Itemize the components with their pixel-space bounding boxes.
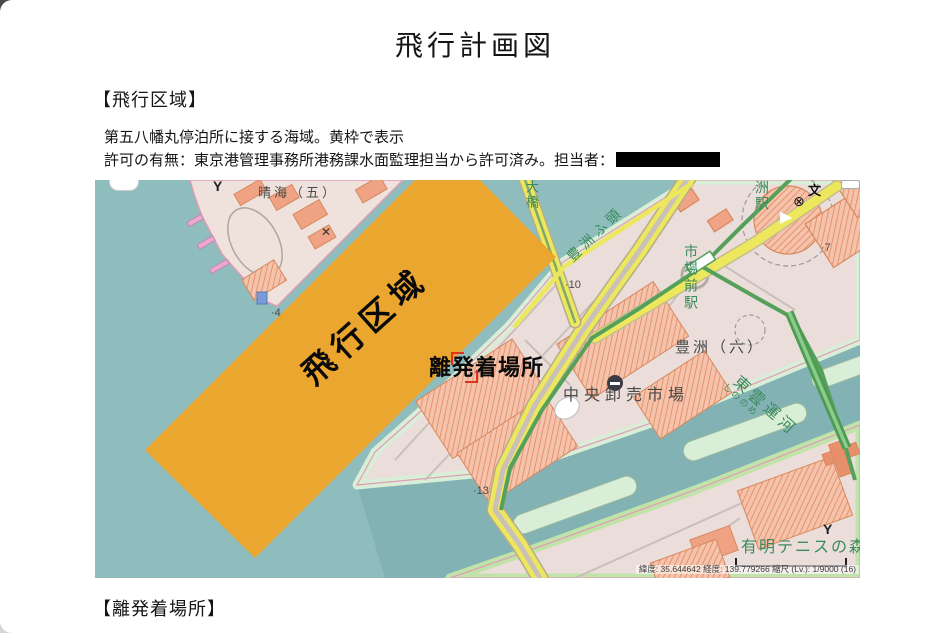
label-harumi-ohashi: 大橋: [525, 180, 538, 210]
label-ariake-tennis: 有明テニスの森: [741, 540, 860, 556]
school-symbol-icon: 文: [808, 184, 821, 197]
landing-site-overlay-text: 離発着場所: [429, 357, 544, 379]
document-page: 飛行計画図 【飛行区域】 第五八幡丸停泊所に接する海域。黄枠で表示 許可の有無：…: [0, 0, 950, 633]
body-text-area-description: 第五八幡丸停泊所に接する海域。黄枠で表示: [104, 126, 404, 147]
port-symbol-icon: Y: [213, 180, 222, 193]
body-text-permission: 許可の有無：東京港管理事務所港務課水面監理担当から許可済み。担当者：: [104, 149, 720, 170]
map-corner-control[interactable]: [841, 180, 860, 189]
cross-symbol-icon: ✕: [321, 226, 331, 238]
label-harumi5: 晴海（五）: [258, 186, 338, 199]
section-heading-flight-area: 【飛行区域】: [93, 86, 207, 112]
label-central-wholesale-market: 中央卸売市場: [563, 388, 689, 404]
pier-structure-blue: [257, 292, 267, 304]
red-bracket-open-icon: [451, 352, 464, 365]
play-triangle-icon: ▶: [780, 210, 792, 226]
map-corner-control-circle[interactable]: [109, 180, 139, 191]
circled-cross-icon: ⊗: [793, 194, 805, 208]
red-bracket-close-icon: [465, 370, 478, 383]
label-toyosu6: 豊洲（六）: [675, 340, 765, 355]
map-attribution: 緯度: 35.644642 経度: 139.779266 縮尺 (Lv.): 1…: [636, 565, 859, 574]
elevation-point-4: ·4: [271, 308, 281, 319]
port-symbol-icon: Y: [823, 522, 832, 536]
label-shijomae-station: 市場前駅: [684, 244, 698, 312]
elevation-point-7: ·7: [821, 243, 831, 254]
redacted-name-box: [616, 152, 720, 167]
metro-icon-bar: [610, 382, 620, 385]
page-title: 飛行計画図: [0, 24, 950, 64]
label-shin-toyosu-station: 洲駅: [755, 180, 769, 212]
permission-text: 許可の有無：東京港管理事務所港務課水面監理担当から許可済み。担当者：: [104, 153, 614, 169]
flight-plan-map: 晴海（五） 大橋 豊洲ふ頭 洲駅 市場前駅 豊洲（六） 中央卸売市場 東雲運河 …: [95, 180, 860, 578]
elevation-point-13: ·13: [473, 486, 489, 497]
elevation-point-10: ·10: [565, 280, 581, 291]
metro-station-icon: [607, 375, 623, 391]
section-heading-landing: 【離発着場所】: [93, 595, 226, 621]
